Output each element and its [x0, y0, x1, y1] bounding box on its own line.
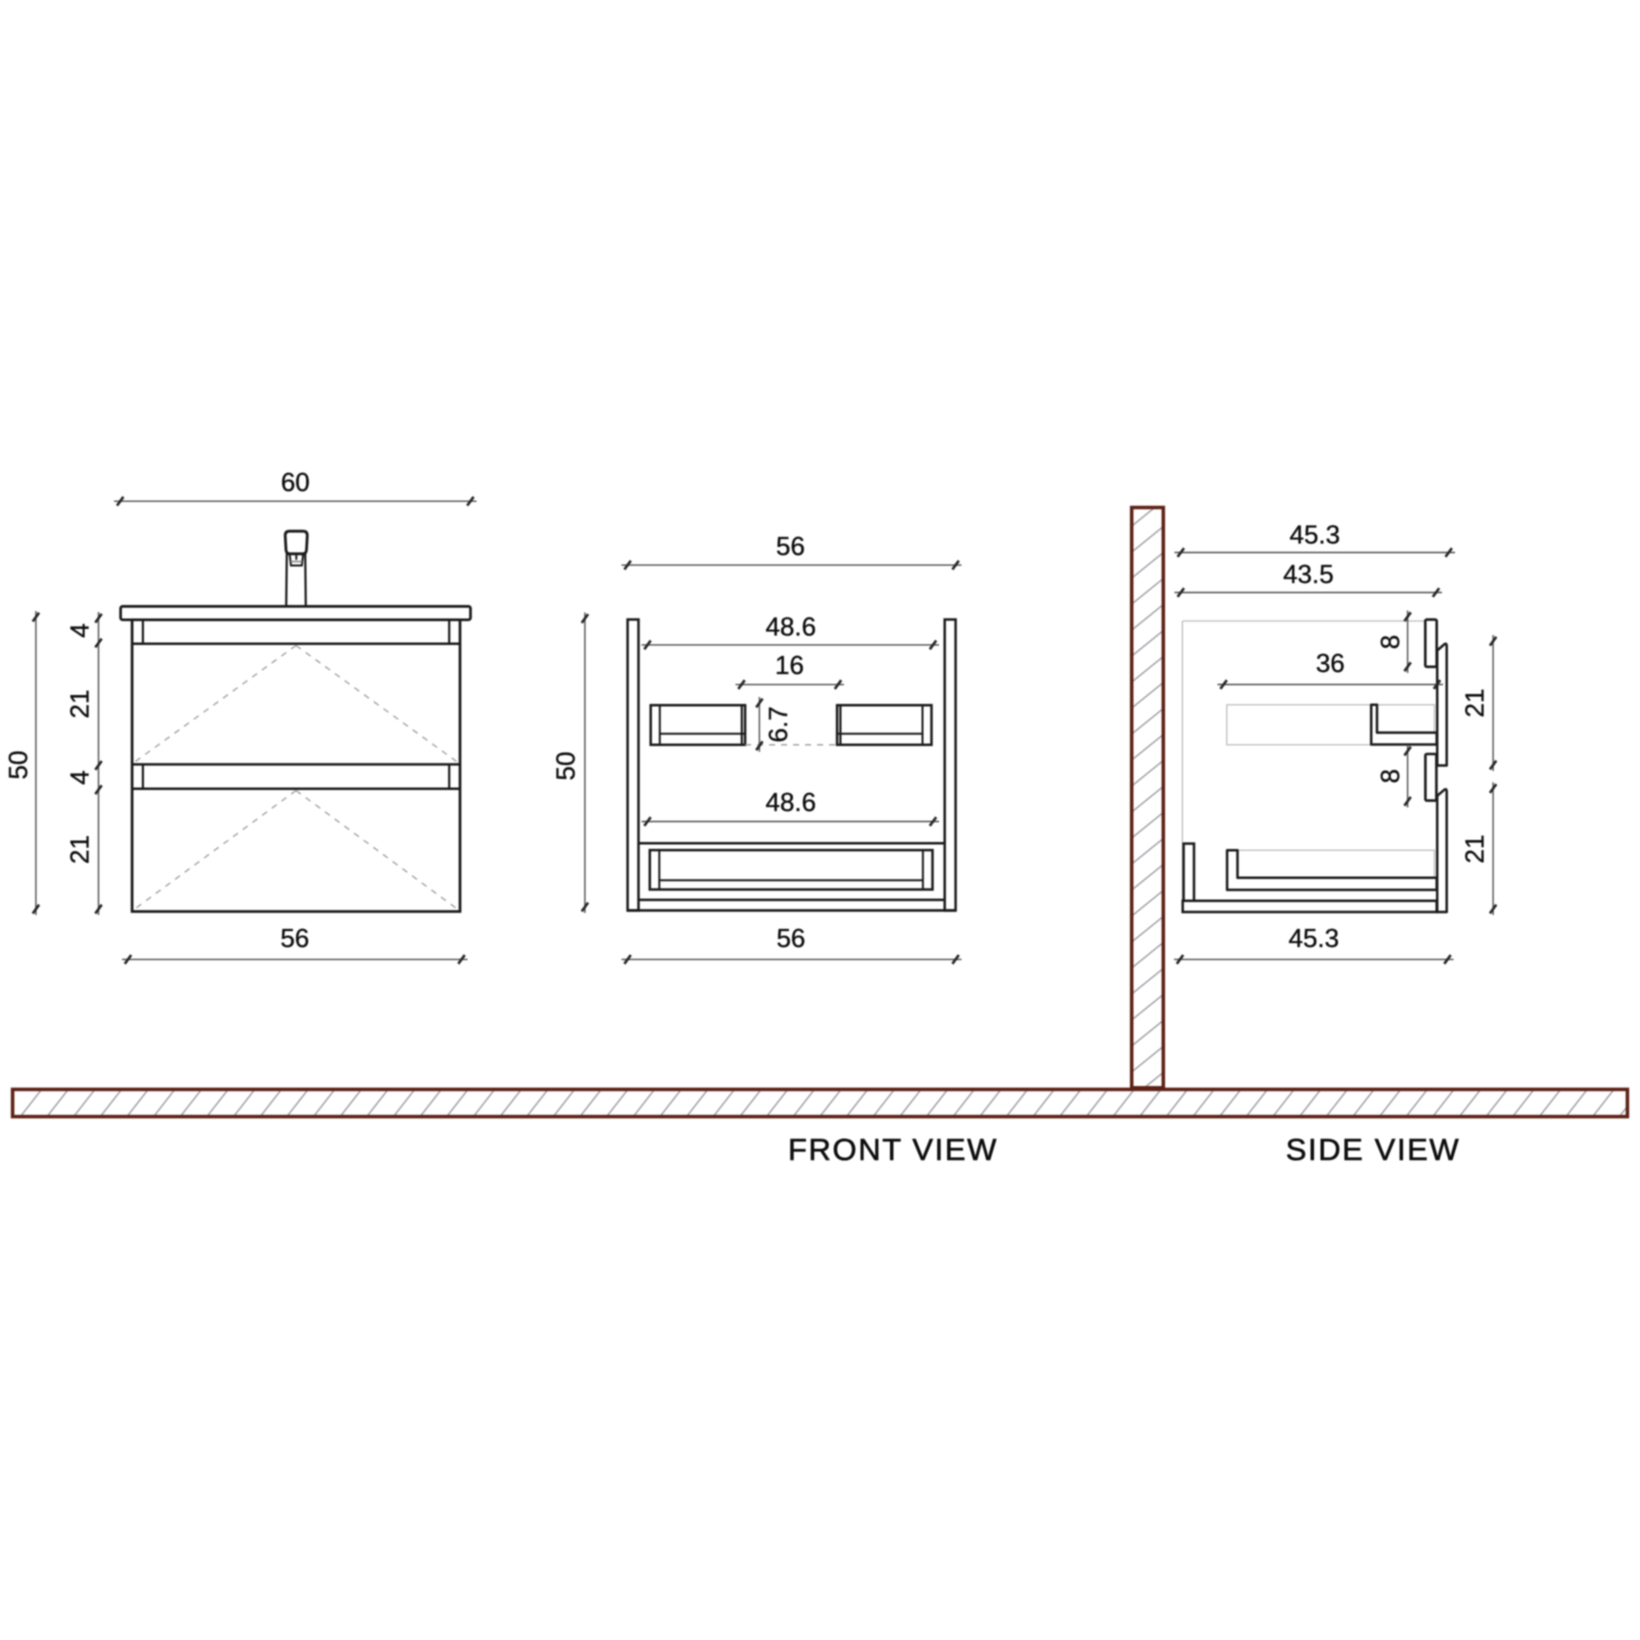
- svg-text:8: 8: [1375, 769, 1405, 783]
- svg-text:21: 21: [1460, 835, 1490, 864]
- svg-text:SIDE VIEW: SIDE VIEW: [1286, 1132, 1461, 1167]
- svg-text:21: 21: [1460, 689, 1490, 718]
- svg-text:48.6: 48.6: [765, 787, 816, 817]
- svg-text:21: 21: [64, 690, 94, 719]
- svg-text:50: 50: [3, 751, 33, 780]
- svg-text:21: 21: [64, 835, 94, 864]
- svg-text:56: 56: [280, 923, 309, 953]
- svg-text:45.3: 45.3: [1289, 520, 1340, 550]
- svg-text:43.5: 43.5: [1283, 559, 1334, 589]
- svg-text:56: 56: [776, 923, 805, 953]
- svg-text:4: 4: [64, 770, 94, 784]
- svg-text:50: 50: [551, 752, 581, 781]
- svg-text:FRONT VIEW: FRONT VIEW: [788, 1132, 998, 1167]
- svg-text:8: 8: [1375, 635, 1405, 649]
- svg-text:6.7: 6.7: [763, 706, 793, 742]
- svg-text:16: 16: [775, 650, 804, 680]
- svg-text:36: 36: [1316, 648, 1345, 678]
- svg-text:56: 56: [776, 531, 805, 561]
- svg-text:60: 60: [281, 467, 310, 497]
- svg-text:45.3: 45.3: [1288, 923, 1339, 953]
- svg-text:48.6: 48.6: [765, 612, 816, 642]
- svg-text:4: 4: [64, 623, 94, 637]
